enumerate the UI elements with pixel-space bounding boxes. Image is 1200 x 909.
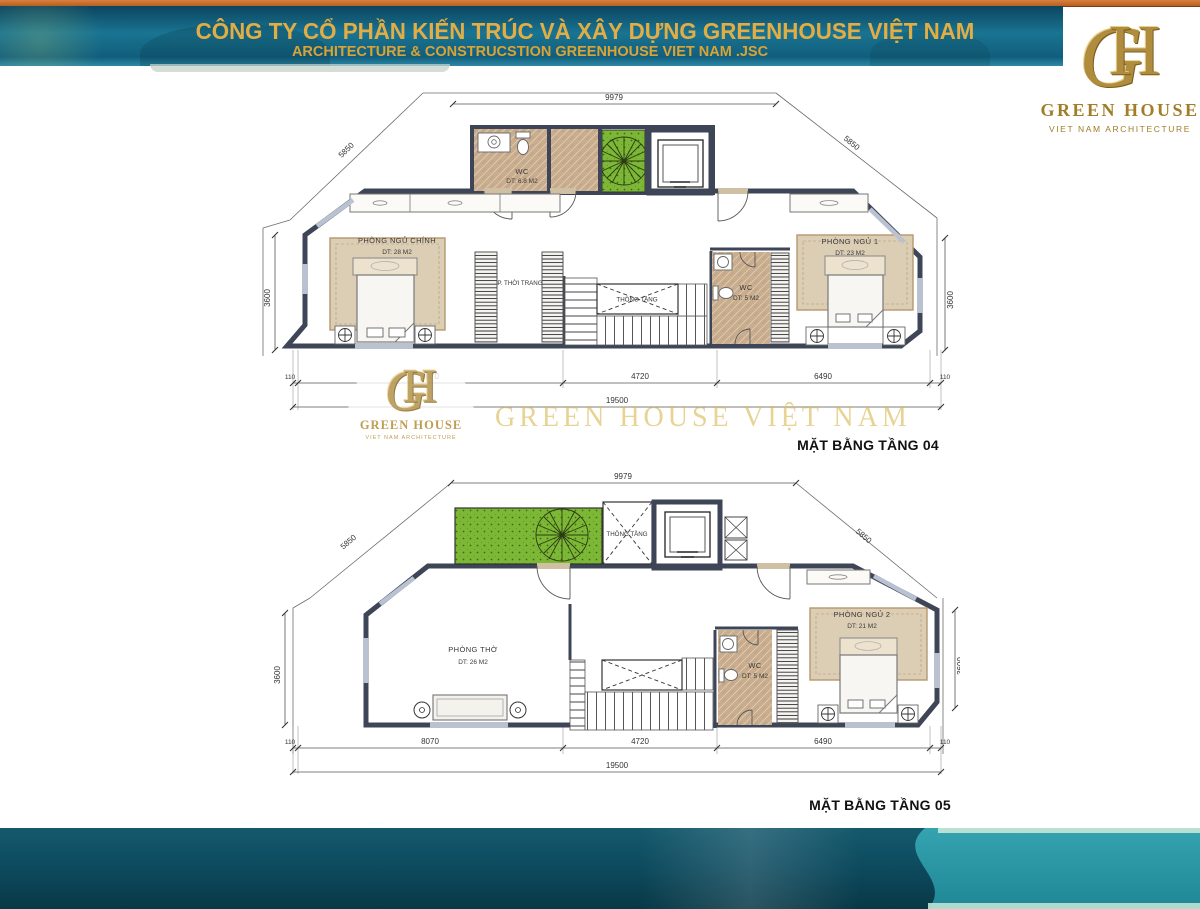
room-area: DT: 26 M2 <box>458 659 488 666</box>
svg-text:110: 110 <box>285 374 296 381</box>
svg-text:3600: 3600 <box>273 666 282 684</box>
svg-text:8070: 8070 <box>421 737 439 746</box>
wc-room: WC DT: 5 M2 <box>712 252 770 344</box>
door-arcs <box>537 566 790 599</box>
wc-top-fixtures <box>478 132 530 155</box>
dim-diag-right: 5850 <box>854 527 874 546</box>
dim-left: 3600 <box>273 610 288 728</box>
company-name-vi: CÔNG TY CỔ PHẦN KIẾN TRÚC VÀ XÂY DỰNG GR… <box>18 18 1063 45</box>
dim-diag-right: 5850 <box>842 134 862 153</box>
page: CÔNG TY CỔ PHẦN KIẾN TRÚC VÀ XÂY DỰNG GR… <box>0 0 1200 909</box>
dim-top: 9979 <box>448 472 799 486</box>
svg-text:3600: 3600 <box>263 289 272 307</box>
dim-bottom: 110 8070 4720 6490 110 19500 <box>285 726 951 775</box>
dim-left: 3600 <box>263 232 278 353</box>
svg-text:3600: 3600 <box>946 291 955 309</box>
company-logo: GH GREEN HOUSE VIET NAM ARCHITECTURE <box>1040 4 1200 144</box>
headboard <box>353 258 417 275</box>
company-banner: CÔNG TY CỔ PHẦN KIẾN TRÚC VÀ XÂY DỰNG GR… <box>0 6 1063 66</box>
footer-background <box>0 828 1200 909</box>
company-name-en: ARCHITECTURE & CONSTRUCSTION GREENHOUSE … <box>0 44 1060 60</box>
void-label: THÔNG TẦNG <box>606 531 647 538</box>
room-area: DT: 6.8 M2 <box>506 178 538 185</box>
footer-banner: THIẾT KẾ BIỆT THỰ, THIẾT KẾ KHÁCH SẠN, N… <box>0 828 1200 909</box>
headboard <box>840 638 897 655</box>
svg-text:3600: 3600 <box>956 657 960 675</box>
service-block: WC DT: 6.8 M2 <box>472 127 713 193</box>
cushion <box>414 702 430 718</box>
gh-monogram-icon: GH <box>1040 4 1200 96</box>
room-label: WC <box>515 167 528 176</box>
spiral-stair-icon <box>600 137 648 185</box>
worship-room: PHÒNG THỜ DT: 26 M2 <box>414 645 526 720</box>
headboard <box>825 256 885 275</box>
room-label: PHÒNG NGỦ 2 <box>834 610 891 619</box>
room-label: WC <box>739 283 752 292</box>
svg-text:110: 110 <box>940 374 951 381</box>
room-label: P. THỜI TRANG <box>497 280 542 287</box>
watermark-text: GREEN HOUSE VIỆT NAM <box>495 402 915 434</box>
room-label: WC <box>748 661 761 670</box>
cushion <box>510 702 526 718</box>
wardrobe-unit <box>475 252 497 342</box>
svg-text:4720: 4720 <box>631 372 649 381</box>
void-label: THÔNG TẦNG <box>616 297 657 304</box>
wardrobe-unit <box>771 253 789 342</box>
room-label: PHÒNG THỜ <box>448 645 498 654</box>
dim-right: 3600 <box>942 235 955 353</box>
nightstand <box>806 327 905 345</box>
dim-diag-left: 5850 <box>337 140 356 159</box>
room-area: DT: 21 M2 <box>847 623 877 630</box>
wardrobe-unit <box>777 630 798 723</box>
svg-text:110: 110 <box>285 739 296 746</box>
logo-tagline: VIET NAM ARCHITECTURE <box>1040 124 1200 134</box>
room-label: PHÒNG NGỦ CHÍNH <box>358 236 436 245</box>
bedroom-1: PHÒNG NGỦ 1 DT: 23 M2 <box>790 194 913 345</box>
dim-diag-left: 5850 <box>339 533 359 552</box>
dim-right: 3600 <box>952 607 960 711</box>
room-area: DT: 5 M2 <box>742 673 768 680</box>
plan-title: MẶT BẰNG TẦNG 04 <box>797 436 939 453</box>
room-area: DT: 5 M2 <box>733 295 759 302</box>
plan-title: MẶT BẰNG TẦNG 05 <box>809 796 951 813</box>
svg-text:6490: 6490 <box>814 737 832 746</box>
gh-monogram-icon: GH <box>348 352 474 416</box>
svg-text:4720: 4720 <box>631 737 649 746</box>
dim-top: 9979 <box>450 93 779 107</box>
roof-block: THÔNG TẦNG <box>455 502 747 568</box>
svg-text:19500: 19500 <box>606 761 629 770</box>
room-area: DT: 28 M2 <box>382 249 412 256</box>
svg-text:9979: 9979 <box>614 472 632 481</box>
staircase: THÔNG TẦNG <box>565 278 707 345</box>
wc-room: WC DT: 5 M2 <box>718 630 772 725</box>
master-bedroom: PHÒNG NGỦ CHÍNH DT: 28 M2 <box>330 194 560 344</box>
watermark-logo: GH GREEN HOUSE VIET NAM ARCHITECTURE <box>348 352 474 478</box>
shaft-boxes <box>725 517 747 560</box>
svg-text:110: 110 <box>940 739 951 746</box>
svg-text:6490: 6490 <box>814 372 832 381</box>
spiral-stair-icon <box>536 509 588 561</box>
skyline-decoration <box>150 64 450 72</box>
room-label: PHÒNG NGỦ 1 <box>822 237 879 246</box>
floor-plan-05: 9979 5850 5850 3600 3600 110 8070 4720 6… <box>250 458 960 828</box>
wardrobe-unit <box>542 252 563 342</box>
svg-text:9979: 9979 <box>605 93 623 102</box>
staircase <box>570 658 713 730</box>
